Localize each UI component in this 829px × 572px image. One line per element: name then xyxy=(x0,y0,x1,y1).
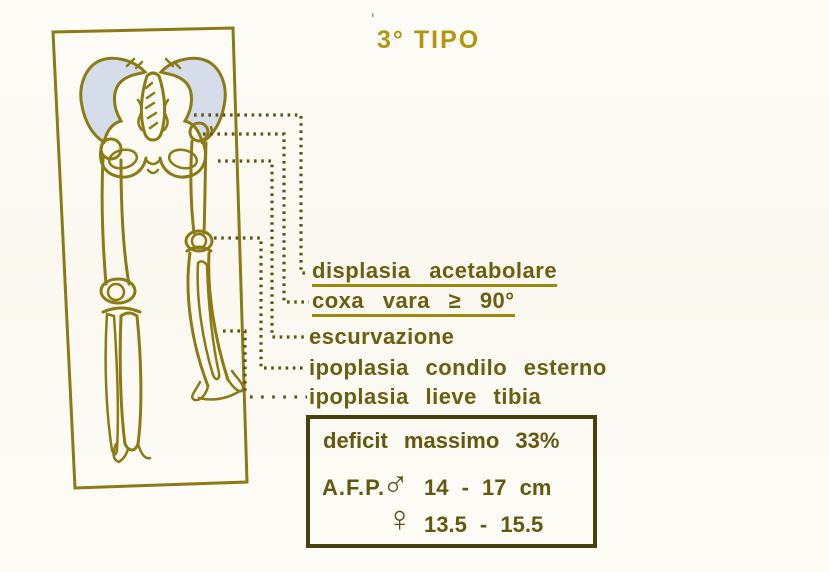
female-range-text: 13.5 - 15.5 xyxy=(424,512,543,538)
figure-canvas: ' 3° TIPO displasia acetabolare coxa var… xyxy=(0,0,829,572)
left-leg-bones xyxy=(101,139,150,462)
annotation-label-coxa-vara: coxa vara ≥ 90° xyxy=(312,290,515,317)
left-fibula xyxy=(106,314,118,455)
stray-mark: ' xyxy=(371,10,374,26)
male-range-text: 14 - 17 cm xyxy=(424,475,551,501)
left-patella xyxy=(108,284,124,300)
annotation-label-ipoplasia-lieve-tibia: ipoplasia lieve tibia xyxy=(309,386,541,408)
left-tibial-plateau xyxy=(103,308,140,312)
left-tibia xyxy=(120,313,141,450)
pubic-arch xyxy=(146,160,160,173)
afp-label: A.F.P. xyxy=(322,475,385,501)
deficit-maximo-text: deficit massimo 33% xyxy=(323,428,559,454)
annotation-label-displasia-acetabolare: displasia acetabolare xyxy=(312,260,557,287)
leader-line-displasia xyxy=(194,115,309,273)
deficit-info-box: deficit massimo 33% A.F.P. ♂ 14 - 17 cm … xyxy=(306,415,597,548)
leader-line-condilo xyxy=(214,238,305,368)
right-ischium xyxy=(160,142,205,177)
left-iliac-wing xyxy=(81,58,145,142)
left-malleoli xyxy=(114,444,150,462)
leader-line-coxa-vara xyxy=(203,134,309,302)
male-symbol-icon: ♂ xyxy=(382,465,409,501)
female-symbol-icon: ♀ xyxy=(386,501,413,537)
right-malleoli xyxy=(192,371,243,400)
sacrum-hatching xyxy=(146,83,157,128)
right-obturator-foramen xyxy=(167,147,198,170)
leader-lines xyxy=(194,115,309,397)
annotation-label-escurvazione: escurvazione xyxy=(309,326,454,348)
figure-title: 3° TIPO xyxy=(377,26,480,55)
right-iliac-wing xyxy=(161,58,225,142)
annotation-label-ipoplasia-condilo-esterno: ipoplasia condilo esterno xyxy=(309,357,607,379)
